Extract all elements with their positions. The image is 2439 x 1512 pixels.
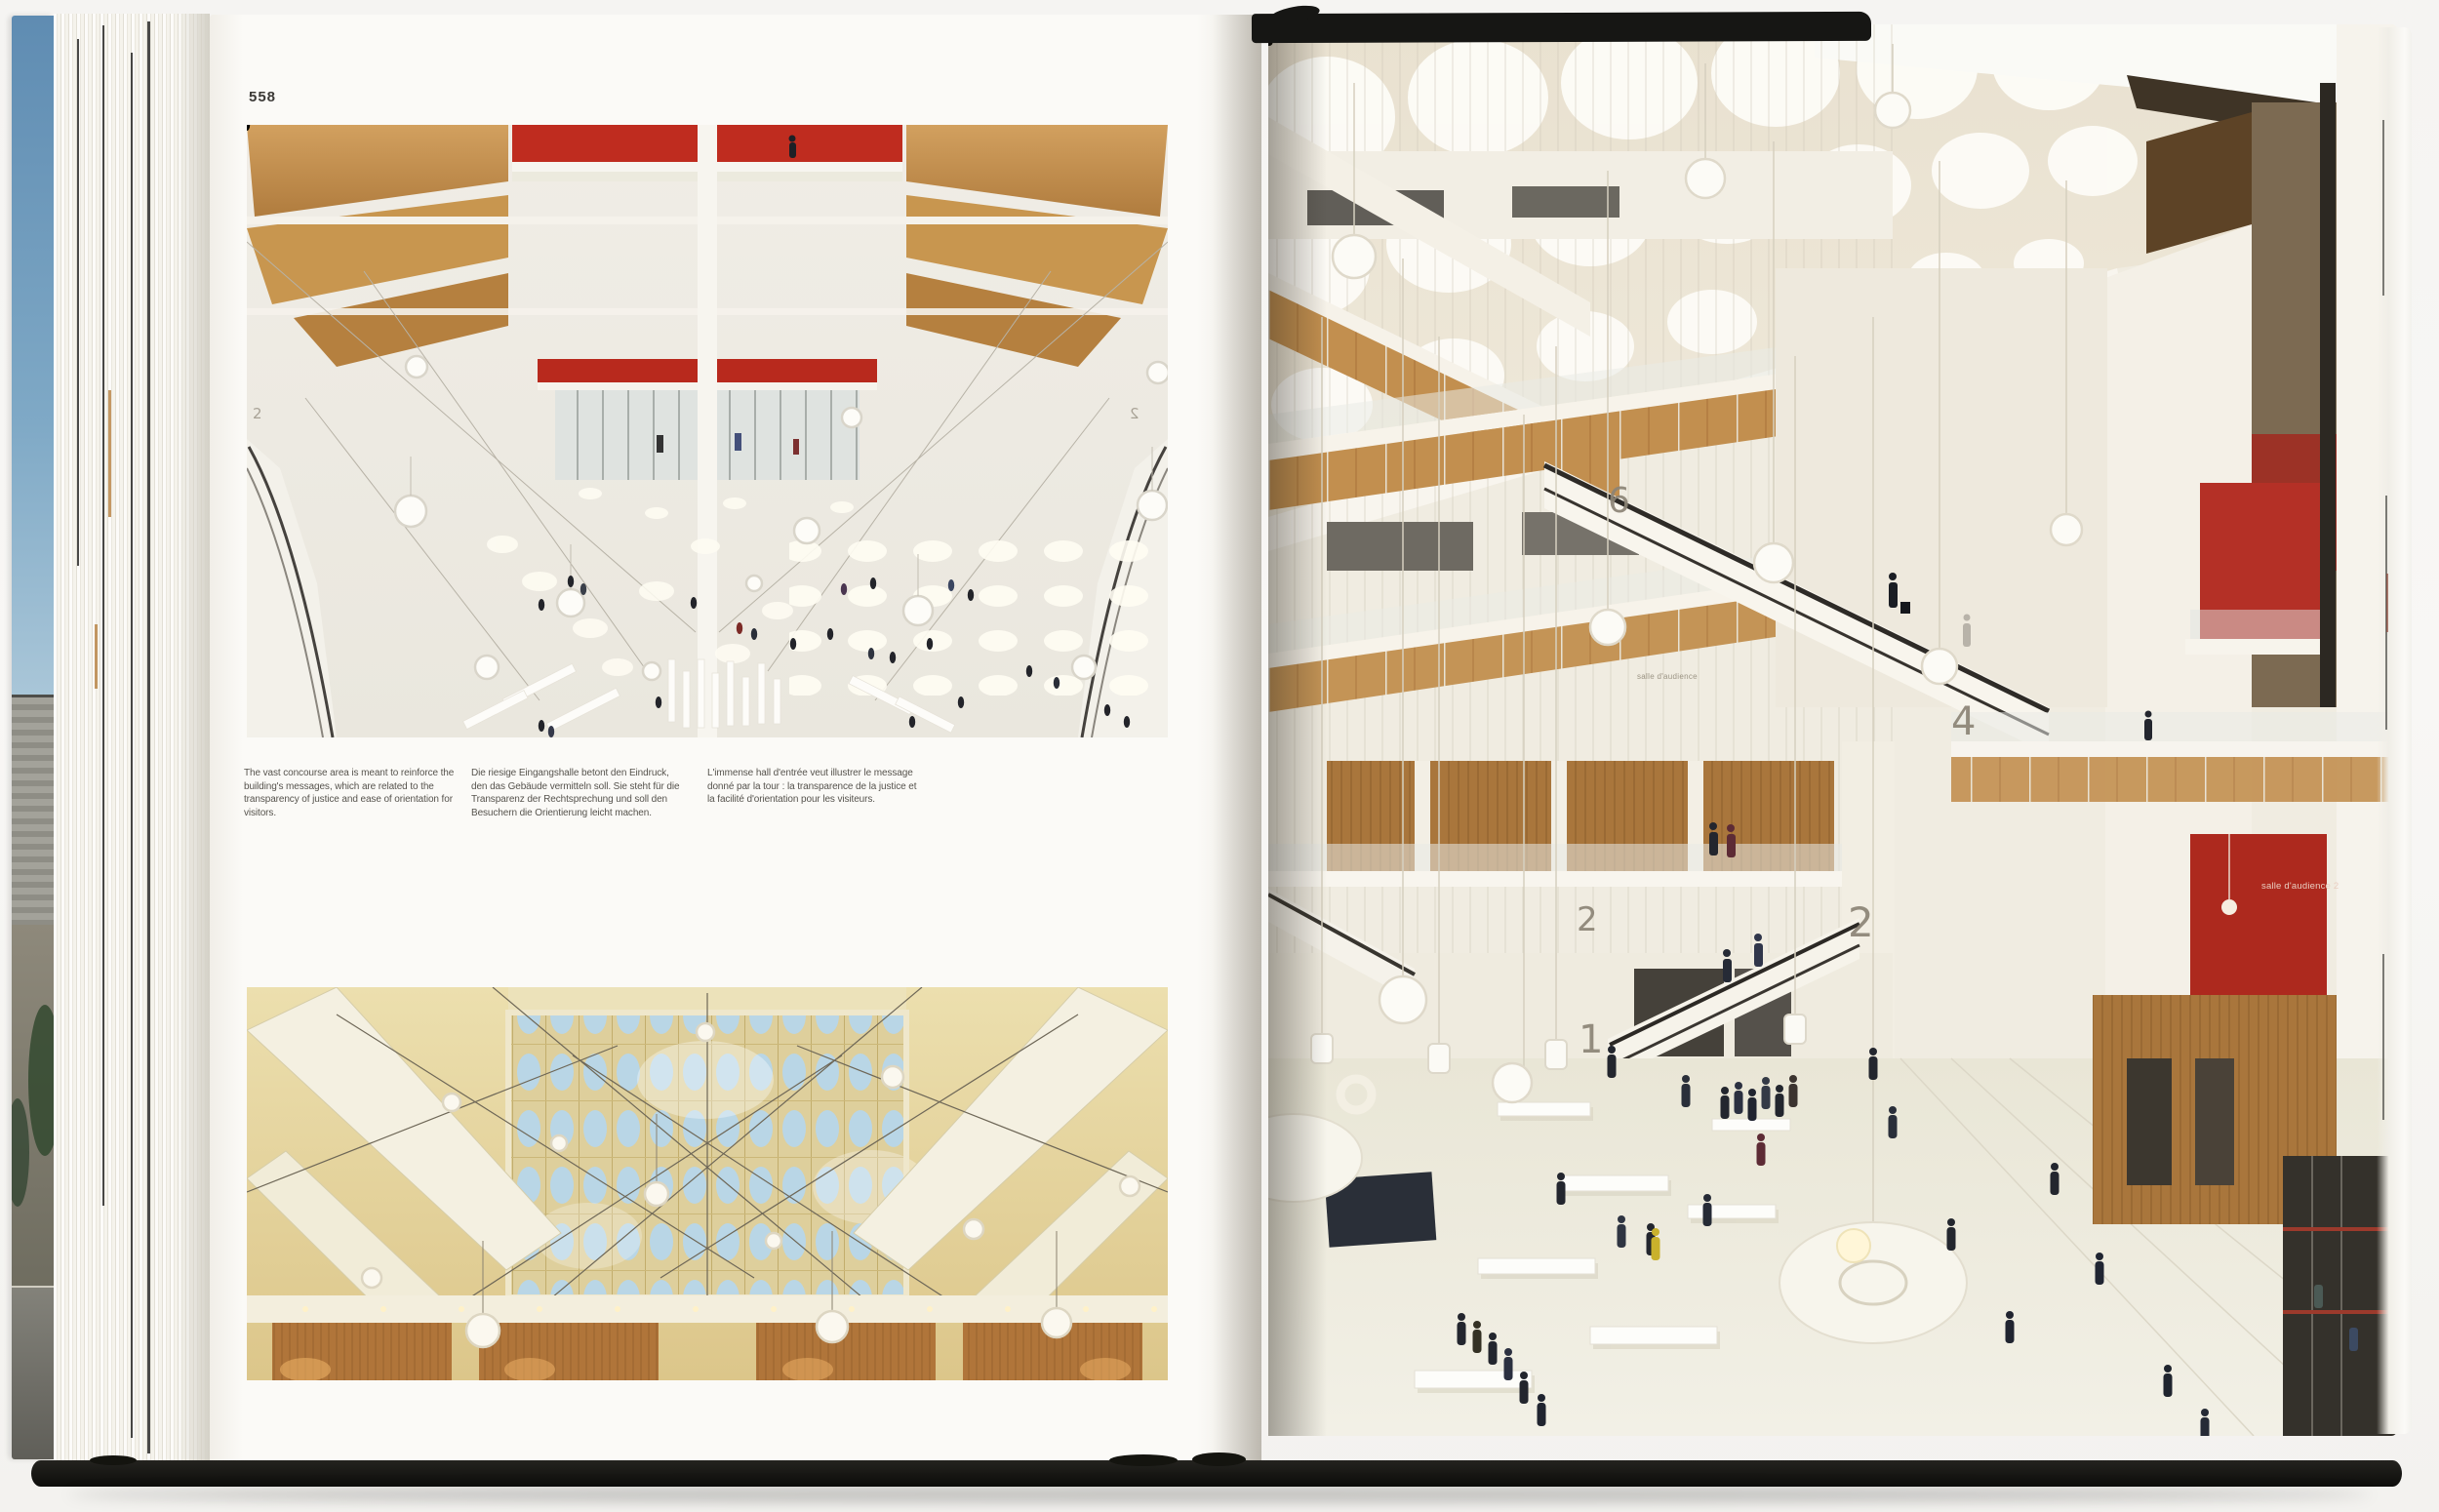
right-page-stack-edge [2377,27,2412,1434]
level-label-2-right: 2 [1130,405,1140,422]
prev-page-sky [12,16,54,695]
prev-page-building [12,695,54,929]
photo-concourse-overhead: 2 2 [247,125,1168,737]
gutter-shadow [1213,15,1261,1463]
central-beam [698,125,717,737]
floor-label-6: 6 [1608,481,1630,521]
page-edge-line [2382,120,2384,296]
cover-bump [1192,1452,1246,1466]
courtroom-sign-wall: salle d'audience [1637,672,1698,681]
palm-tree [28,1005,54,1156]
floor-label-2-right: 2 [1848,898,1874,946]
floor-label-1: 1 [1579,1017,1603,1062]
prev-page-street [12,1286,54,1459]
prev-page-midground [12,925,54,1286]
caption-german: Die riesige Eingangshalle betont den Ein… [471,767,684,819]
photo-atrium-upward [247,987,1168,1380]
gutter-shadow [1268,24,1327,1436]
book-spread: 558 [0,0,2439,1512]
cover-bump [1109,1454,1178,1466]
cover-bump [1268,2,1321,26]
floor-light-pools [789,530,1168,696]
page-edge-red-mark [2386,574,2388,632]
photo-atrium-art [1268,24,2397,1436]
page-edge-line [77,39,79,566]
caption-french: L'immense hall d'entrée veut illustrer l… [707,767,920,807]
book-cover-bottom-edge [31,1460,2402,1487]
page-edge-wood-mark [108,390,111,517]
photo-atrium-upward-art [247,987,1168,1380]
photo-concourse-overhead-art [247,125,1168,737]
caption-english: The vast concourse area is meant to rein… [244,767,457,819]
page-stack-shade [177,14,210,1461]
palm-tree [12,1098,29,1207]
page-edge-wood-mark [95,624,98,689]
level-4-gallery [1951,711,2397,803]
book-cover-top-edge [1252,12,1871,43]
page-edge-line [2382,954,2384,1120]
courtroom-sign-red: salle d'audience 2 [2261,881,2351,892]
left-page: 558 [210,15,1261,1463]
floor-label-2-left: 2 [1577,900,1598,939]
page-edge-line [102,25,104,1206]
page-edge-line [147,21,150,1453]
level-label-2-left: 2 [253,405,262,422]
page-edge-line [131,53,133,1438]
cover-bump [90,1455,137,1465]
book-shadow [68,1487,2371,1502]
previous-page-fore-edge [12,16,54,1459]
page-number: 558 [249,89,276,105]
large-disc-lamp [1779,1222,1967,1343]
left-page-stack-edge [54,14,210,1461]
right-page-photo-atrium: 6 4 2 2 1 salle d'audience 2 salle d'aud… [1268,24,2397,1436]
floor-label-4: 4 [1951,699,1976,744]
